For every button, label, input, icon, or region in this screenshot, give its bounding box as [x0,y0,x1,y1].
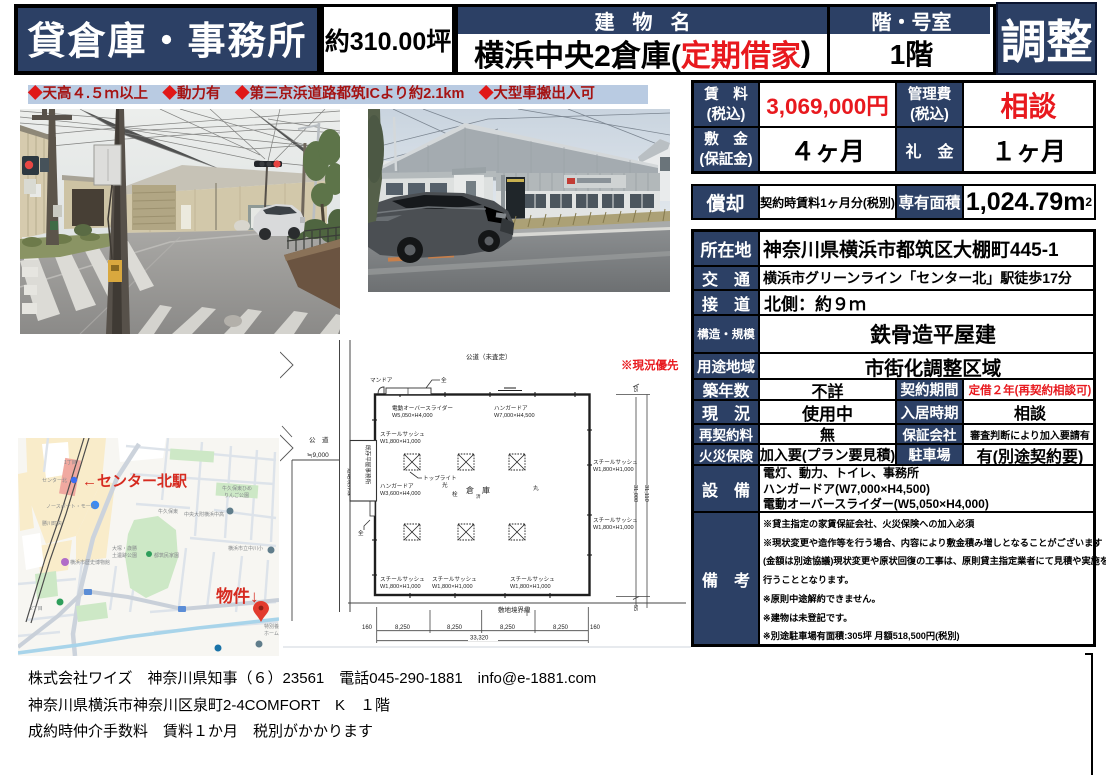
svg-text:スチールサッシュ: スチールサッシュ [593,459,638,466]
svg-text:スチールサッシュ: スチールサッシュ [432,576,477,583]
svg-text:W1,800×H1,000: W1,800×H1,000 [432,584,473,590]
svg-text:8,250: 8,250 [395,625,411,631]
svg-text:33,320: 33,320 [470,636,489,642]
svg-text:りんご公園: りんご公園 [224,492,249,499]
svg-text:スチールサッシュ: スチールサッシュ [593,517,638,524]
svg-text:栓: 栓 [452,490,458,498]
svg-text:160: 160 [590,625,601,631]
svg-text:既存平屋事務所: 既存平屋事務所 [364,445,372,485]
svg-text:丸: 丸 [533,484,539,492]
svg-text:スチールサッシュ: スチールサッシュ [380,576,425,583]
svg-text:勝川町央: 勝川町央 [42,520,62,527]
svg-text:ホーム: ホーム [264,631,279,637]
svg-text:8,250: 8,250 [553,625,569,631]
svg-text:W1,800×H1,000: W1,800×H1,000 [380,584,421,590]
svg-text:都筑民家園: 都筑民家園 [154,552,179,559]
svg-text:トップライト: トップライト [423,475,457,482]
svg-text:横浜市歴史博物館: 横浜市歴史博物館 [70,559,110,566]
svg-text:敷地境界線: 敷地境界線 [498,605,531,614]
svg-text:55: 55 [632,605,638,611]
svg-text:スチールサッシュ: スチールサッシュ [380,431,425,438]
svg-text:マンドア: マンドア [370,377,393,384]
svg-text:1丁目: 1丁目 [64,460,77,466]
svg-text:W1,800×H1,000: W1,800×H1,000 [593,467,634,473]
svg-text:≒9,000: ≒9,000 [307,452,329,459]
svg-text:ノースポート・モール: ノースポート・モール [46,503,96,510]
svg-text:31,000: 31,000 [632,485,638,502]
svg-text:ハンガードア: ハンガードア [494,404,528,412]
svg-text:160: 160 [362,625,373,631]
svg-text:55: 55 [632,386,638,392]
svg-text:公 道: 公 道 [309,435,329,444]
svg-text:大塚・歳勝: 大塚・歳勝 [112,545,137,552]
svg-text:土遺跡公園: 土遺跡公園 [112,552,137,559]
svg-text:W1,800×H1,000: W1,800×H1,000 [510,584,551,590]
svg-text:←センター北駅: ←センター北駅 [82,473,188,490]
svg-text:W7,000×H4,500: W7,000×H4,500 [494,413,535,419]
svg-text:牛久保東: 牛久保東 [158,508,178,515]
svg-text:センター北: センター北 [42,477,67,484]
svg-text:W3,600×H4,000: W3,600×H4,000 [380,491,421,497]
svg-text:電動オーバースライダー: 電動オーバースライダー [392,404,453,412]
svg-text:※現況優先: ※現況優先 [621,358,679,372]
svg-text:済: 済 [476,493,481,500]
svg-text:特別養: 特別養 [264,623,279,630]
svg-text:物件↓: 物件↓ [216,586,259,606]
svg-text:光: 光 [442,481,448,489]
svg-text:横浜市立中川小: 横浜市立中川小 [228,545,263,552]
svg-text:スチールサッシュ: スチールサッシュ [510,576,555,583]
svg-text:公道（未査定）: 公道（未査定） [466,352,512,361]
svg-text:8,250: 8,250 [500,625,516,631]
svg-text:W1,800×H1,000: W1,800×H1,000 [380,439,421,445]
svg-text:全: 全 [358,529,364,537]
svg-text:牛久保東ひめ: 牛久保東ひめ [222,485,252,492]
svg-text:31,110: 31,110 [643,485,649,502]
svg-text:全: 全 [441,376,447,384]
svg-text:中央大附横浜中高: 中央大附横浜中高 [184,511,224,518]
svg-text:W1,800×H1,000: W1,800×H1,000 [593,525,634,531]
svg-text:ハンガードア: ハンガードア [380,482,414,490]
svg-text:W5,050×H4,000: W5,050×H4,000 [392,413,433,419]
svg-text:2丁目: 2丁目 [30,606,43,612]
svg-text:8,250: 8,250 [447,625,463,631]
